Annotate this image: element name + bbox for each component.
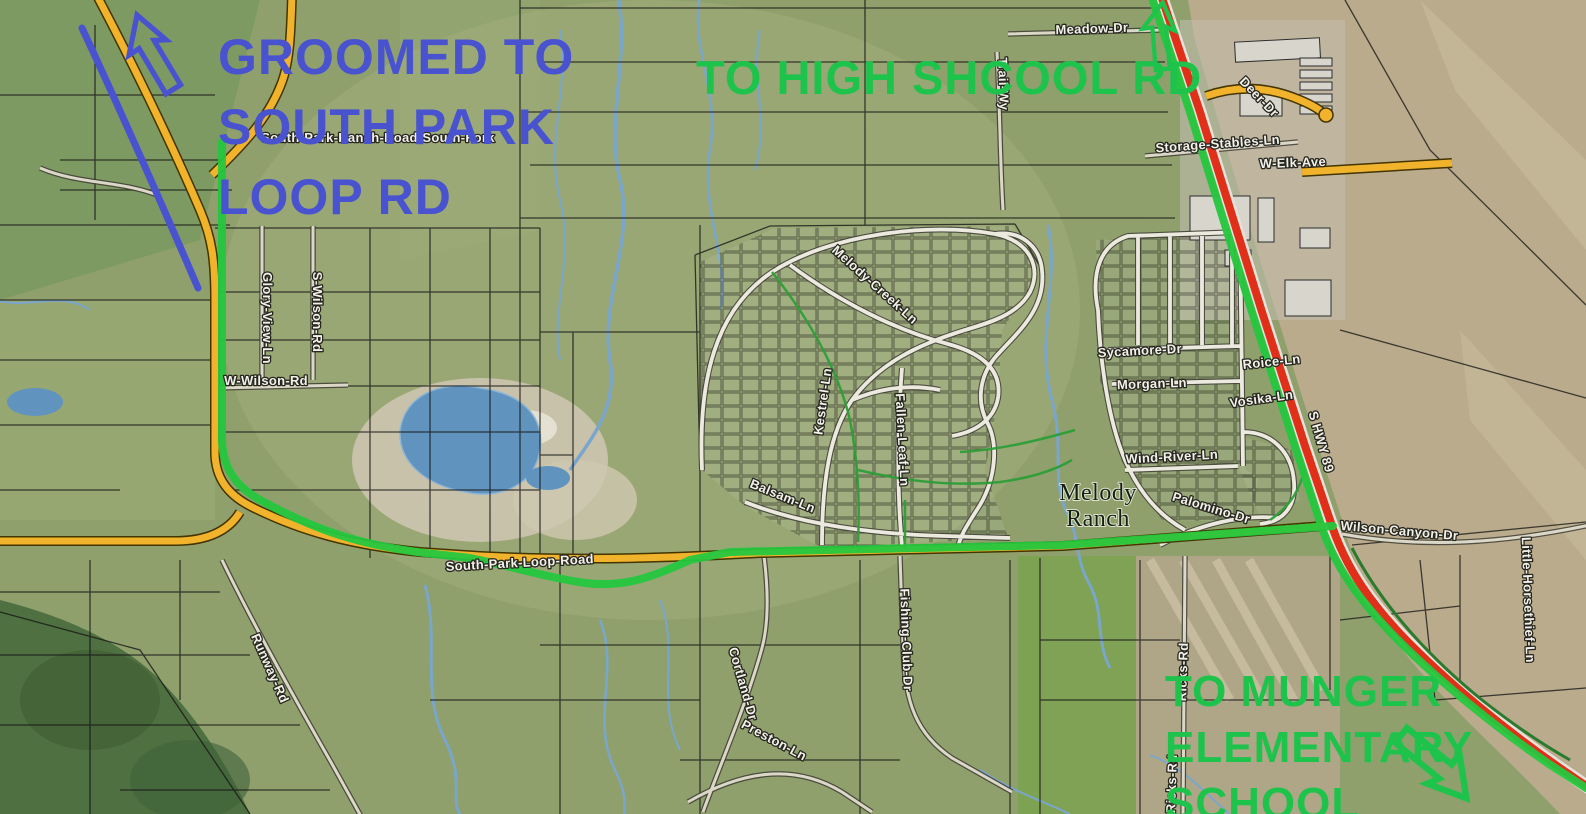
road-label: W-Wilson-Rd xyxy=(224,373,308,388)
annotation-line: LOOP RD xyxy=(218,162,574,232)
road-label: W-Elk-Ave xyxy=(1259,154,1326,171)
road-label: S-Wilson-Rd xyxy=(310,272,325,352)
road-label: Meadow-Dr xyxy=(1055,20,1128,38)
annotation-line: TO HIGH SHCOOL RD xyxy=(696,52,1202,104)
place-label: Ranch xyxy=(1066,506,1130,532)
annotation-line: GROOMED TO xyxy=(218,22,574,92)
annotation-to-munger-elementary: TO MUNGER ELEMENTARY SCHOOL xyxy=(1165,664,1473,814)
annotation-line: ELEMENTARY xyxy=(1165,720,1473,776)
aerial-map-image: South-Park-Ranch-Road-South-ForkGlory-Vi… xyxy=(0,0,1586,814)
road-label: Glory-View-Ln xyxy=(260,272,275,364)
deer-dr-culdesac xyxy=(1319,108,1333,122)
road-label: Morgan-Ln xyxy=(1117,375,1187,392)
annotation-to-high-school-rd: TO HIGH SHCOOL RD xyxy=(696,52,1202,104)
annotation-line: SOUTH PARK xyxy=(218,92,574,162)
annotation-groomed-to-south-park: GROOMED TO SOUTH PARK LOOP RD xyxy=(218,22,574,232)
annotation-line: SCHOOL xyxy=(1165,776,1473,814)
annotation-line: TO MUNGER xyxy=(1165,664,1473,720)
place-label: Melody xyxy=(1059,480,1137,506)
